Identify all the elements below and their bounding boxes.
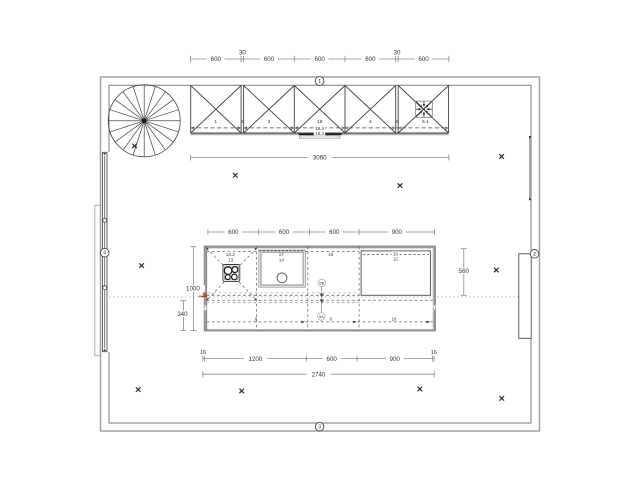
svg-text:5A: 5A: [319, 314, 324, 319]
svg-text:3: 3: [268, 119, 271, 125]
svg-text:1: 1: [214, 119, 217, 125]
svg-text:600: 600: [228, 229, 239, 236]
svg-text:600: 600: [327, 356, 338, 363]
svg-text:15: 15: [328, 252, 334, 257]
svg-text:3: 3: [318, 425, 321, 431]
svg-text:2: 2: [241, 119, 244, 125]
svg-text:14: 14: [279, 257, 285, 262]
svg-text:4: 4: [103, 251, 106, 257]
svg-text:600: 600: [279, 229, 290, 236]
svg-text:900: 900: [390, 356, 401, 363]
svg-text:13.2: 13.2: [226, 252, 235, 257]
svg-text:4: 4: [369, 119, 372, 125]
svg-text:1: 1: [318, 79, 321, 85]
svg-text:18: 18: [317, 119, 323, 125]
svg-text:12: 12: [393, 257, 399, 262]
svg-text:2740: 2740: [312, 371, 326, 378]
svg-text:560: 560: [459, 268, 470, 275]
svg-text:3060: 3060: [313, 155, 327, 162]
svg-text:16: 16: [393, 251, 399, 256]
svg-text:11: 11: [432, 306, 437, 311]
svg-text:16: 16: [431, 350, 437, 356]
svg-text:10: 10: [392, 317, 397, 322]
svg-text:1000: 1000: [186, 286, 200, 293]
svg-text:1200: 1200: [249, 356, 263, 363]
svg-text:600: 600: [329, 229, 340, 236]
svg-text:900: 900: [392, 229, 403, 236]
svg-text:6.1: 6.1: [422, 119, 429, 125]
svg-text:13: 13: [228, 258, 234, 263]
svg-text:16: 16: [200, 350, 206, 356]
svg-text:5: 5: [396, 119, 399, 125]
svg-text:30: 30: [239, 50, 246, 57]
svg-text:18.3: 18.3: [315, 131, 324, 136]
svg-text:600: 600: [365, 56, 376, 63]
svg-text:600: 600: [211, 56, 222, 63]
svg-text:600: 600: [418, 56, 429, 63]
svg-text:30: 30: [394, 50, 401, 57]
svg-text:2: 2: [533, 252, 536, 258]
svg-text:340: 340: [177, 311, 188, 318]
svg-text:600: 600: [264, 56, 275, 63]
svg-text:600: 600: [315, 56, 326, 63]
svg-text:5B: 5B: [319, 281, 324, 286]
